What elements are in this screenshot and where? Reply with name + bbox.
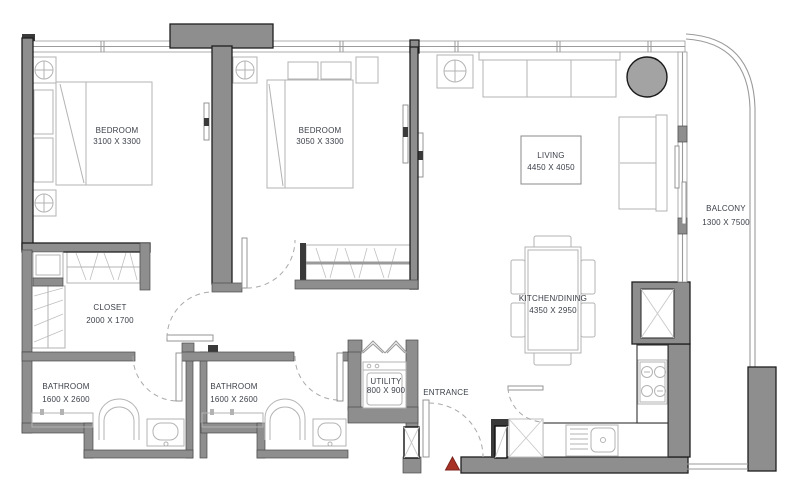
wardrobe-icon [67,250,140,283]
bedroom-2-label: BEDROOM [299,126,342,135]
balcony-dims: 1300 X 7500 [702,218,750,227]
sliding-door-icon [675,146,679,188]
bedroom-1-label: BEDROOM [96,126,139,135]
washbasin-icon [147,419,184,446]
bathroom-2-door-leaf [337,353,343,401]
sliding-door-icon [682,182,686,224]
bathroom-1-dims: 1600 X 2600 [42,395,90,404]
bathroom-1-label: BATHROOM [42,382,89,391]
bathroom-2-label: BATHROOM [210,382,257,391]
kitchen-dining-dims: 4350 X 2950 [529,306,577,315]
chair-icon [511,260,525,294]
round-column-icon [627,57,667,97]
bedroom-1-dims: 3100 X 3300 [93,137,141,146]
door-swing-icon [247,240,295,288]
washbasin-icon [313,419,346,446]
closet-door-leaf [167,335,213,341]
pillow-icon [288,62,318,79]
bedroom-2-dims: 3050 X 3300 [296,137,344,146]
chair-icon [511,303,525,337]
faucet-icon [210,409,214,415]
door-swing-icon [167,292,213,338]
window-icon [33,41,685,52]
floor-plan-canvas: BEDROOM 3100 X 3300 BEDROOM 3050 X 3300 … [0,0,795,494]
living-label-box [521,136,581,184]
faucet-icon [230,409,234,415]
closet-dims: 2000 X 1700 [86,316,134,325]
closet-label: CLOSET [93,303,126,312]
pillow-icon [34,138,53,182]
pillow-icon [34,90,53,134]
bathroom-1-furniture [32,399,184,446]
wardrobe-icon [32,286,65,348]
utility-label: UTILITY [370,377,402,386]
sofa-icon [479,49,620,97]
door-swing-icon [295,356,339,400]
utility-dims: 800 X 900 [367,386,406,395]
bathroom-2-dims: 1600 X 2600 [210,395,258,404]
t-column [170,24,273,48]
chair-icon [581,303,595,337]
entrance-marker-icon [446,457,460,470]
door-swing-icon [508,388,543,422]
bathroom-2-furniture [202,399,346,446]
balcony-label: BALCONY [706,204,746,213]
faucet-icon [60,409,64,415]
armchair-icon [619,115,667,211]
shoe-cabinet-icon [509,419,543,457]
bedroom-2-door-leaf [242,238,247,288]
kitchen-dining-label: KITCHEN/DINING [519,294,587,303]
bedroom-2-furniture [233,57,411,289]
living-dims: 4450 X 4050 [527,163,575,172]
toilet-icon [265,399,305,440]
entrance-label: ENTRANCE [423,388,469,397]
closet-door-leaf [508,386,543,390]
wardrobe-icon [306,245,411,281]
chair-icon [534,352,571,365]
side-table-lamp-icon [437,55,473,88]
living-furniture [437,49,667,211]
chair-icon [581,260,595,294]
bathroom-1-door-leaf [176,353,182,401]
balcony-column [748,367,776,471]
door-swing-icon [429,403,483,457]
living-label: LIVING [537,151,564,160]
bifold-door-icon [361,341,407,353]
entrance-door-leaf [423,400,429,457]
nightstand-lamp-icon [356,57,378,83]
door-swing-icon [133,356,178,401]
wall-niche [33,252,63,278]
pivot-column-icon [404,427,419,458]
toilet-icon [99,399,139,440]
utility-room [361,341,407,408]
pillow-icon [321,62,351,79]
duct-shaft-icon [632,282,690,344]
chair-icon [534,236,571,248]
faucet-icon [40,409,44,415]
